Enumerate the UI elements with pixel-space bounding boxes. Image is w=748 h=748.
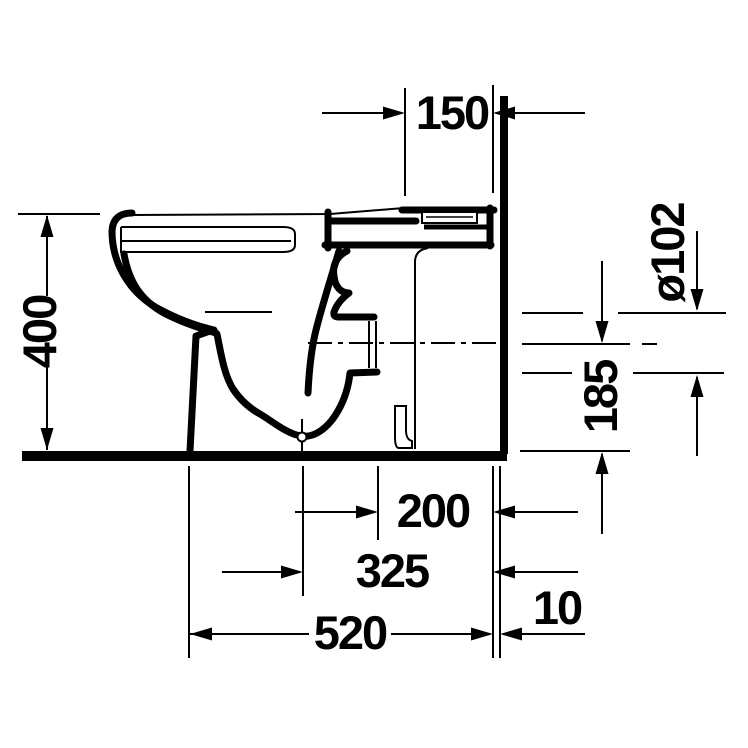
toilet-outlet-gasket-bump [334,251,374,317]
arrowhead-left-icon [500,628,522,641]
dimension-height: 400 [13,214,100,450]
arrowhead-up-icon [41,215,54,237]
toilet-rear-vertical-line [415,248,428,449]
page: 150 400 ø102 185 200 [0,0,748,748]
arrowhead-right-icon [383,107,405,120]
arrowhead-left-icon [190,628,212,641]
arrowhead-down-icon [41,428,54,450]
dimension-outlet-center-height: 185 [520,261,657,534]
dim-label-rear-depth: 200 [397,484,470,537]
toilet-outlet-end-cap [369,321,376,368]
toilet-top-edge-line [131,208,404,215]
dimension-rear-depth: 200 [295,466,578,540]
dim-label-outlet-diameter: ø102 [641,203,694,303]
dim-label-wall-gap: 10 [533,581,582,634]
arrowhead-up-icon [691,375,704,397]
fixing-bracket-detail [395,406,412,448]
toilet-outline [112,208,497,451]
technical-drawing: 150 400 ø102 185 200 [0,0,748,748]
arrowhead-right-icon [281,566,303,579]
dim-label-mid-depth: 325 [356,544,429,597]
toilet-inner-front-curve [124,254,216,333]
dim-label-height: 400 [13,295,66,368]
dimension-wall-gap: 10 [500,466,585,658]
toilet-sump-curve [217,334,377,436]
arrowhead-up-icon [596,452,609,474]
arrowhead-right-icon [356,506,378,519]
sump-center-marker [298,433,307,442]
floor-bar [22,451,507,461]
toilet-seat-slab [121,227,295,252]
dim-label-total-depth: 520 [314,606,387,659]
arrowhead-right-icon [471,628,493,641]
wall-section [500,96,508,454]
dim-label-top-depth: 150 [416,86,489,139]
arrowhead-left-icon [493,506,515,519]
floor-section [22,451,507,461]
arrowhead-left-icon [493,566,515,579]
toilet-pedestal-front-edge [190,330,213,451]
wall-bar [500,96,508,454]
dimension-top-depth: 150 [322,85,585,196]
dim-label-outlet-center-height: 185 [574,360,627,433]
arrowhead-down-icon [596,321,609,343]
